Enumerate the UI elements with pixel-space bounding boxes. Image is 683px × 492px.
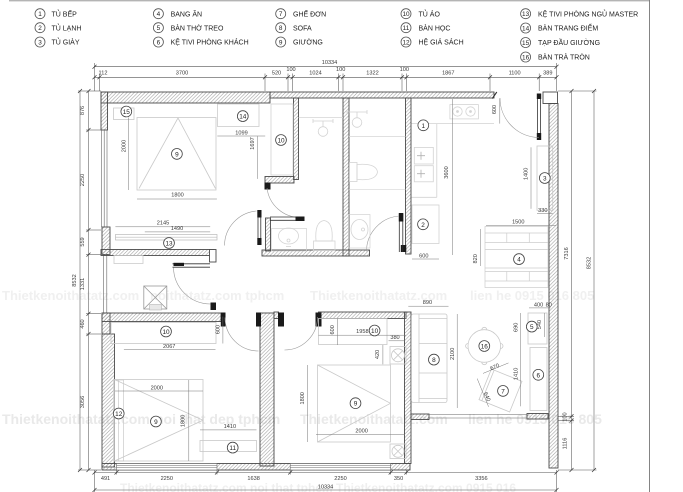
svg-text:1400: 1400 [523, 168, 529, 180]
svg-text:10: 10 [402, 11, 410, 18]
svg-text:Thietkenoithatatz.com: Thietkenoithatatz.com [2, 411, 150, 427]
svg-text:380: 380 [390, 335, 399, 341]
svg-text:BÀN THỜ TREO: BÀN THỜ TREO [171, 23, 224, 32]
svg-text:5: 5 [157, 25, 161, 32]
svg-text:13: 13 [522, 11, 530, 18]
svg-text:100: 100 [286, 67, 295, 73]
svg-text:8532: 8532 [587, 257, 593, 269]
svg-text:KỆ TIVI PHÒNG KHÁCH: KỆ TIVI PHÒNG KHÁCH [171, 38, 249, 47]
svg-text:1867: 1867 [442, 71, 454, 77]
svg-text:TỦ ÁO: TỦ ÁO [419, 9, 441, 18]
svg-text:SOFA: SOFA [293, 25, 312, 32]
svg-text:Thietkenoithatatz.com: Thietkenoithatatz.com [2, 288, 139, 303]
svg-text:1: 1 [38, 11, 42, 18]
svg-text:600: 600 [492, 105, 498, 114]
svg-text:400: 400 [534, 302, 543, 308]
svg-text:8: 8 [279, 25, 283, 32]
svg-text:1410: 1410 [224, 424, 236, 430]
svg-text:1116: 1116 [563, 438, 569, 450]
svg-text:10334: 10334 [318, 484, 334, 490]
svg-text:2067: 2067 [163, 344, 175, 350]
svg-text:14: 14 [522, 25, 530, 32]
svg-text:2: 2 [421, 222, 425, 229]
svg-text:9: 9 [175, 151, 179, 158]
svg-text:1322: 1322 [366, 71, 378, 77]
svg-text:420: 420 [375, 350, 381, 359]
svg-text:9: 9 [354, 401, 358, 408]
svg-text:14: 14 [239, 114, 247, 121]
svg-text:1800: 1800 [300, 392, 306, 404]
svg-text:100: 100 [336, 67, 345, 73]
svg-text:lien he 0915 016 805: lien he 0915 016 805 [470, 288, 594, 303]
svg-text:2250: 2250 [334, 476, 346, 482]
svg-text:12: 12 [402, 39, 410, 46]
svg-text:7: 7 [501, 388, 505, 395]
svg-text:100: 100 [400, 67, 409, 73]
svg-text:BANG ĂN: BANG ĂN [171, 9, 203, 18]
svg-text:16: 16 [522, 54, 530, 61]
svg-text:1024: 1024 [309, 71, 321, 77]
svg-text:330: 330 [538, 208, 547, 214]
svg-text:1100: 1100 [509, 71, 521, 77]
svg-text:1: 1 [422, 123, 426, 130]
svg-text:TỦ LẠNH: TỦ LẠNH [52, 23, 82, 32]
svg-text:600: 600 [419, 254, 428, 260]
svg-text:TỦ GIÀY: TỦ GIÀY [52, 38, 80, 47]
svg-text:BÀN TRÀ TRÒN: BÀN TRÀ TRÒN [538, 53, 590, 62]
svg-text:3: 3 [543, 176, 547, 183]
svg-text:3700: 3700 [176, 71, 188, 77]
svg-text:7: 7 [279, 11, 283, 18]
svg-text:1800: 1800 [181, 415, 187, 427]
svg-text:876: 876 [80, 106, 86, 115]
svg-text:2100: 2100 [450, 348, 456, 360]
svg-text:1800: 1800 [171, 193, 183, 199]
svg-text:noithatatz.com tphcm: noithatatz.com tphcm [150, 288, 284, 303]
svg-text:520: 520 [272, 71, 281, 77]
svg-text:16: 16 [481, 344, 489, 351]
svg-text:11: 11 [403, 25, 410, 32]
svg-text:100: 100 [563, 412, 569, 421]
svg-text:1490: 1490 [171, 226, 183, 232]
svg-text:15: 15 [123, 109, 131, 116]
svg-text:1099: 1099 [235, 131, 247, 137]
svg-text:GIƯỜNG: GIƯỜNG [293, 38, 323, 47]
svg-text:3356: 3356 [475, 476, 487, 482]
svg-text:890: 890 [423, 300, 432, 306]
svg-text:1697: 1697 [250, 137, 256, 149]
svg-text:540: 540 [537, 320, 543, 329]
svg-text:2250: 2250 [161, 476, 173, 482]
svg-text:BÀN HỌC: BÀN HỌC [419, 23, 451, 32]
svg-text:2145: 2145 [157, 221, 169, 227]
svg-text:2000: 2000 [355, 429, 367, 435]
svg-text:10: 10 [162, 329, 170, 336]
svg-text:2000: 2000 [121, 140, 127, 152]
svg-text:HỆ GIÁ SÁCH: HỆ GIÁ SÁCH [419, 38, 464, 47]
svg-text:559: 559 [80, 237, 86, 246]
svg-text:10: 10 [277, 138, 285, 145]
svg-text:8532: 8532 [72, 274, 78, 286]
svg-text:BÀN TRANG ĐIỂM: BÀN TRANG ĐIỂM [538, 24, 598, 33]
svg-text:3600: 3600 [444, 166, 450, 178]
svg-text:4: 4 [517, 257, 521, 264]
svg-text:690: 690 [513, 323, 519, 332]
svg-text:KỆ TIVI PHÒNG NGỦ MASTER: KỆ TIVI PHÒNG NGỦ MASTER [538, 9, 638, 18]
svg-text:3056: 3056 [80, 396, 86, 408]
svg-text:4: 4 [157, 11, 161, 18]
svg-text:1500: 1500 [512, 219, 524, 225]
svg-text:600: 600 [216, 325, 222, 334]
svg-text:11: 11 [229, 445, 236, 452]
svg-text:9: 9 [154, 419, 158, 426]
svg-text:7316: 7316 [564, 247, 570, 259]
svg-text:10334: 10334 [322, 60, 338, 66]
svg-text:80: 80 [546, 302, 552, 308]
svg-text:2000: 2000 [151, 385, 163, 391]
svg-text:8: 8 [432, 357, 436, 364]
svg-text:389: 389 [543, 71, 552, 77]
svg-text:13: 13 [165, 241, 173, 248]
svg-text:600: 600 [330, 325, 336, 334]
svg-text:12: 12 [115, 411, 123, 418]
svg-text:1331: 1331 [80, 278, 86, 290]
svg-text:350: 350 [394, 476, 403, 482]
svg-text:820: 820 [473, 254, 479, 263]
svg-text:1410: 1410 [513, 368, 519, 380]
svg-text:460: 460 [80, 319, 86, 328]
svg-text:2250: 2250 [80, 174, 86, 186]
svg-text:6: 6 [537, 372, 541, 379]
svg-text:491: 491 [101, 476, 110, 482]
svg-text:112: 112 [99, 71, 108, 77]
svg-text:10: 10 [371, 328, 379, 335]
svg-text:5: 5 [530, 324, 534, 331]
svg-text:9: 9 [279, 39, 283, 46]
svg-text:6: 6 [157, 39, 161, 46]
svg-text:1958: 1958 [356, 329, 368, 335]
svg-text:15: 15 [522, 40, 530, 47]
svg-text:3: 3 [38, 39, 42, 46]
svg-text:2: 2 [38, 25, 42, 32]
svg-text:1638: 1638 [247, 476, 259, 482]
